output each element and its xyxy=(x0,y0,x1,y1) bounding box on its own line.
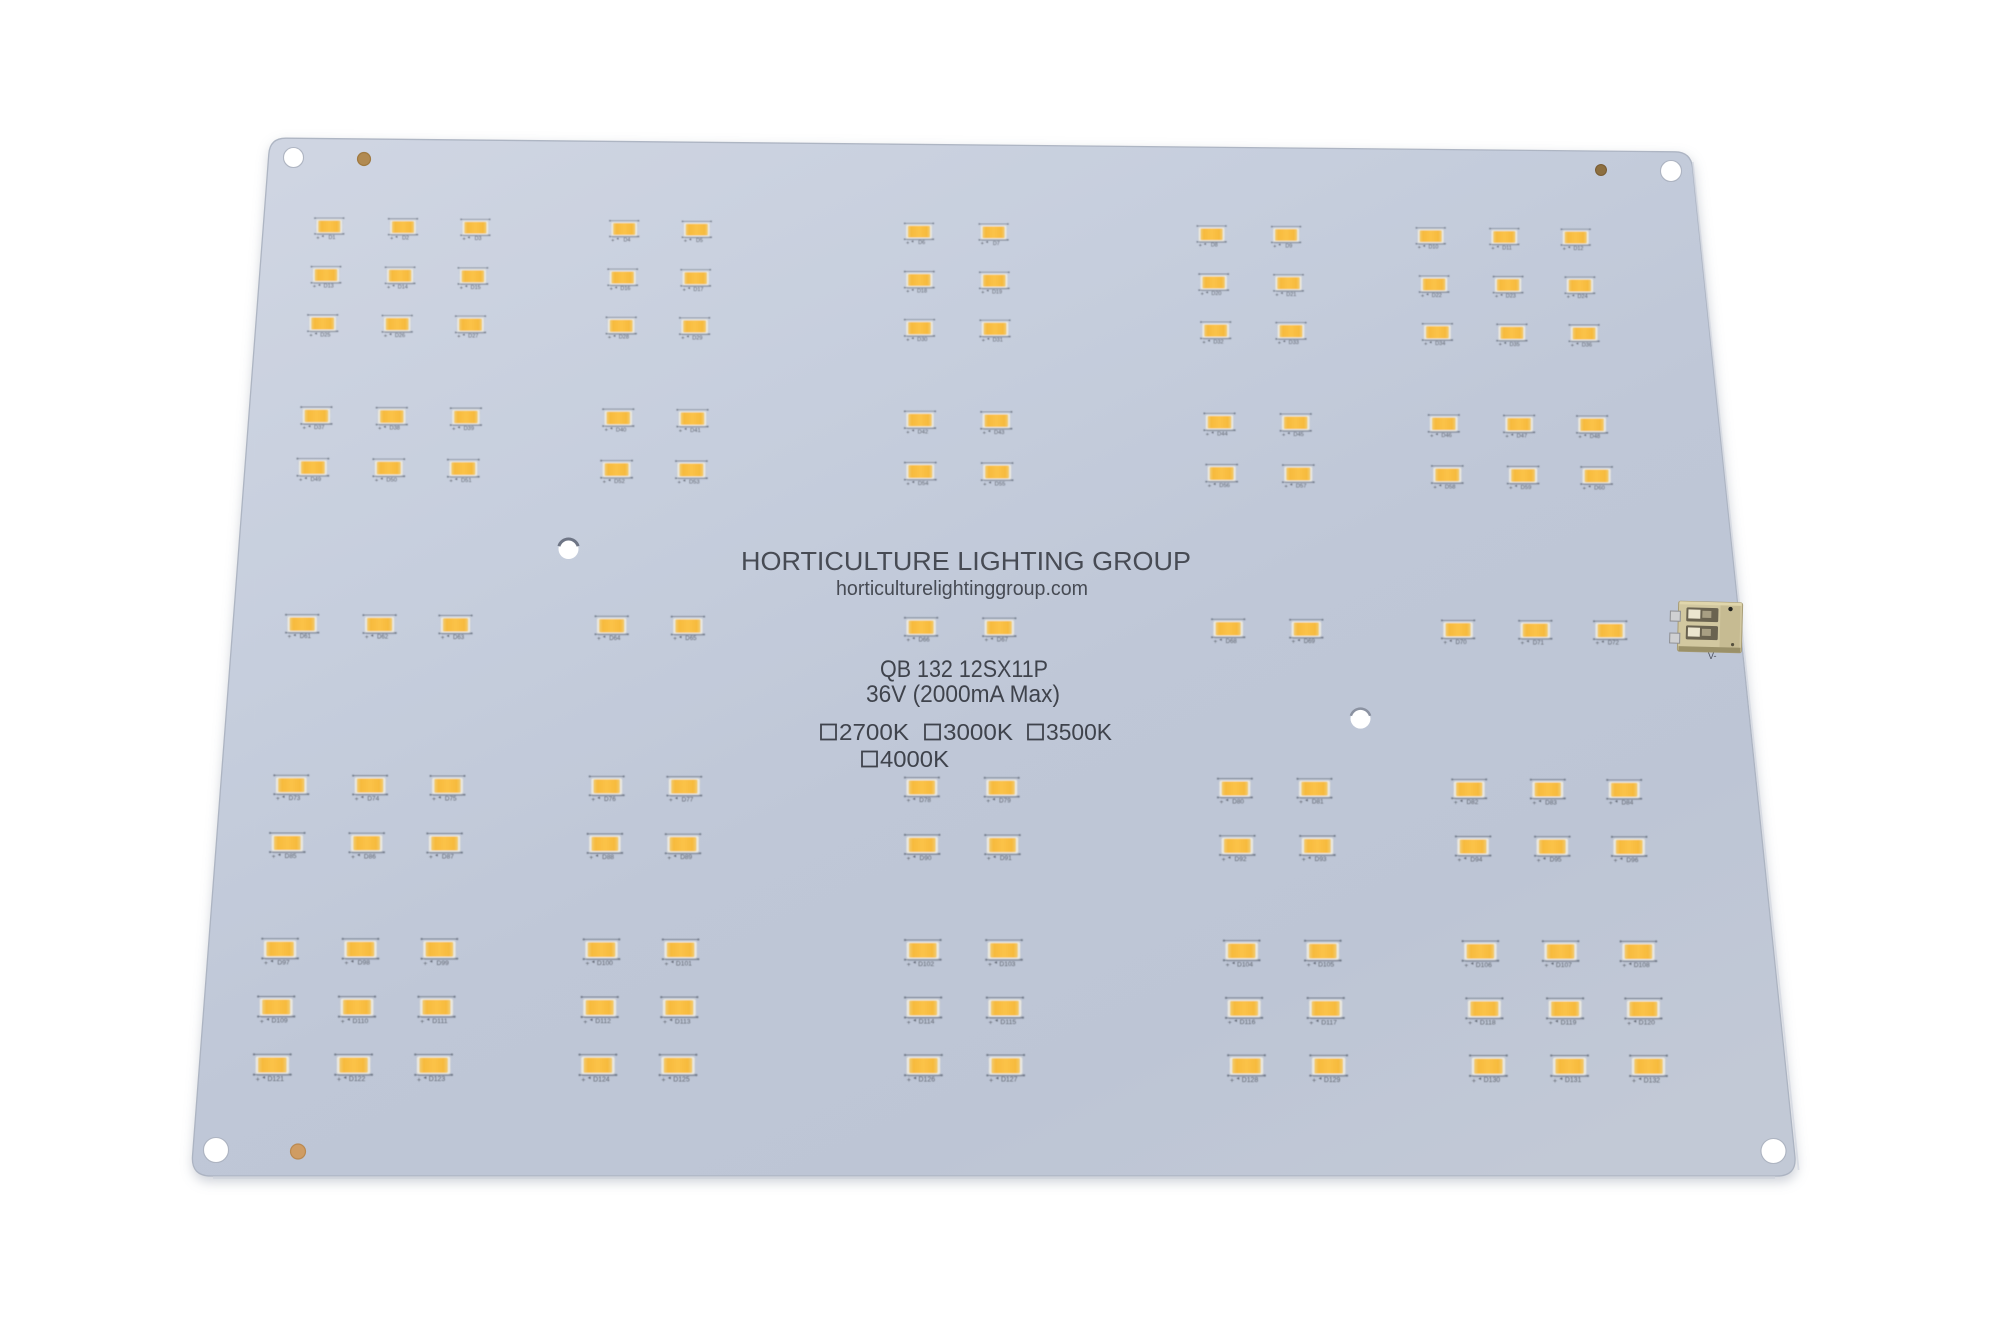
svg-text:D103: D103 xyxy=(999,961,1015,968)
svg-text:D28: D28 xyxy=(619,335,629,341)
svg-text:D25: D25 xyxy=(320,332,330,338)
svg-text:D128: D128 xyxy=(1242,1077,1259,1084)
svg-text:D13: D13 xyxy=(324,284,334,290)
svg-text:D38: D38 xyxy=(389,426,399,432)
svg-text:D91: D91 xyxy=(1000,855,1012,862)
svg-text:D119: D119 xyxy=(1561,1020,1577,1027)
svg-text:D53: D53 xyxy=(689,480,700,486)
svg-text:D50: D50 xyxy=(386,478,397,484)
svg-text:D130: D130 xyxy=(1484,1077,1501,1084)
svg-text:D131: D131 xyxy=(1565,1077,1582,1084)
svg-text:D73: D73 xyxy=(289,795,301,802)
svg-text:D61: D61 xyxy=(300,633,312,640)
svg-text:3000K: 3000K xyxy=(943,719,1014,745)
svg-text:D35: D35 xyxy=(1509,342,1519,348)
svg-text:D9: D9 xyxy=(1285,243,1292,249)
svg-text:D65: D65 xyxy=(685,635,697,642)
svg-text:D64: D64 xyxy=(609,635,621,642)
svg-text:D39: D39 xyxy=(464,426,474,432)
svg-text:D124: D124 xyxy=(593,1076,610,1083)
svg-text:2700K: 2700K xyxy=(839,719,910,745)
svg-text:D123: D123 xyxy=(429,1076,446,1083)
svg-text:D106: D106 xyxy=(1476,962,1492,969)
svg-text:D101: D101 xyxy=(676,960,692,967)
svg-text:D36: D36 xyxy=(1582,342,1592,348)
svg-text:4000K: 4000K xyxy=(880,746,950,772)
svg-text:D54: D54 xyxy=(918,481,929,487)
svg-text:D85: D85 xyxy=(285,853,297,860)
svg-text:D70: D70 xyxy=(1456,639,1468,646)
svg-text:D5: D5 xyxy=(696,238,703,244)
svg-text:D111: D111 xyxy=(432,1018,447,1025)
svg-text:D46: D46 xyxy=(1441,433,1451,439)
svg-text:D47: D47 xyxy=(1517,434,1527,440)
svg-text:D26: D26 xyxy=(395,333,405,339)
svg-text:D104: D104 xyxy=(1237,961,1253,968)
svg-text:D115: D115 xyxy=(1000,1019,1016,1026)
svg-text:D59: D59 xyxy=(1521,485,1532,491)
svg-text:D116: D116 xyxy=(1240,1019,1256,1026)
svg-text:D132: D132 xyxy=(1644,1077,1661,1084)
svg-text:D81: D81 xyxy=(1312,799,1324,806)
svg-text:D79: D79 xyxy=(999,798,1011,805)
svg-text:D94: D94 xyxy=(1470,857,1482,864)
svg-text:D112: D112 xyxy=(595,1018,611,1025)
svg-text:D87: D87 xyxy=(442,854,454,861)
svg-text:36V (2000mA Max): 36V (2000mA Max) xyxy=(866,681,1060,708)
svg-text:D49: D49 xyxy=(310,477,321,483)
svg-text:D57: D57 xyxy=(1296,483,1307,489)
svg-text:D114: D114 xyxy=(919,1019,935,1026)
svg-text:D78: D78 xyxy=(919,797,931,804)
svg-text:D63: D63 xyxy=(453,634,465,641)
svg-text:D98: D98 xyxy=(358,960,371,967)
svg-text:D75: D75 xyxy=(445,796,457,803)
svg-text:D110: D110 xyxy=(353,1018,369,1025)
svg-text:D14: D14 xyxy=(398,284,408,290)
svg-text:D127: D127 xyxy=(1001,1077,1018,1084)
svg-text:D80: D80 xyxy=(1232,798,1244,805)
svg-text:D44: D44 xyxy=(1217,432,1227,438)
svg-text:D10: D10 xyxy=(1428,245,1438,251)
svg-text:D15: D15 xyxy=(471,285,481,291)
svg-text:D82: D82 xyxy=(1467,799,1479,806)
svg-text:D109: D109 xyxy=(271,1018,287,1025)
svg-text:HORTICULTURE LIGHTING GROUP: HORTICULTURE LIGHTING GROUP xyxy=(741,546,1191,576)
svg-text:D60: D60 xyxy=(1594,485,1605,491)
svg-text:D68: D68 xyxy=(1226,638,1238,645)
svg-text:D16: D16 xyxy=(620,286,630,292)
svg-text:D71: D71 xyxy=(1533,639,1545,646)
svg-text:D77: D77 xyxy=(682,796,694,803)
svg-text:D83: D83 xyxy=(1545,799,1557,806)
svg-text:D34: D34 xyxy=(1435,341,1445,347)
svg-text:D74: D74 xyxy=(367,795,379,802)
svg-text:D92: D92 xyxy=(1235,856,1247,863)
svg-text:D3: D3 xyxy=(475,236,482,242)
svg-text:D67: D67 xyxy=(997,637,1009,644)
svg-text:D24: D24 xyxy=(1578,294,1588,300)
svg-text:D29: D29 xyxy=(692,335,702,341)
svg-text:D40: D40 xyxy=(616,427,626,433)
svg-text:D97: D97 xyxy=(277,960,290,967)
svg-text:D58: D58 xyxy=(1445,484,1456,490)
svg-text:D32: D32 xyxy=(1213,339,1223,345)
svg-text:D43: D43 xyxy=(994,430,1004,436)
svg-text:D86: D86 xyxy=(364,853,376,860)
svg-text:D121: D121 xyxy=(267,1076,284,1083)
svg-text:D108: D108 xyxy=(1634,962,1650,969)
svg-text:D122: D122 xyxy=(349,1076,366,1083)
svg-text:D18: D18 xyxy=(917,289,927,295)
svg-text:D19: D19 xyxy=(992,289,1002,295)
svg-text:D72: D72 xyxy=(1608,640,1620,647)
svg-text:D90: D90 xyxy=(920,855,932,862)
svg-text:D55: D55 xyxy=(995,482,1006,488)
svg-text:D51: D51 xyxy=(461,478,472,484)
svg-text:D62: D62 xyxy=(377,634,389,641)
svg-text:D102: D102 xyxy=(918,961,934,968)
svg-text:D96: D96 xyxy=(1626,857,1638,864)
svg-text:D30: D30 xyxy=(917,337,927,343)
svg-text:D69: D69 xyxy=(1304,638,1316,645)
svg-text:V-: V- xyxy=(1708,651,1717,661)
svg-text:D23: D23 xyxy=(1506,294,1516,300)
svg-text:D100: D100 xyxy=(597,960,613,967)
svg-text:D88: D88 xyxy=(602,854,614,861)
svg-text:D93: D93 xyxy=(1315,856,1327,863)
svg-text:D31: D31 xyxy=(993,338,1003,344)
svg-text:D95: D95 xyxy=(1550,857,1562,864)
svg-text:D76: D76 xyxy=(604,796,616,803)
svg-text:QB 132 12SX11P: QB 132 12SX11P xyxy=(880,656,1048,683)
svg-text:D107: D107 xyxy=(1556,962,1572,969)
svg-text:D37: D37 xyxy=(314,425,324,431)
svg-text:D4: D4 xyxy=(623,238,630,244)
svg-text:D17: D17 xyxy=(693,287,703,293)
svg-text:D6: D6 xyxy=(918,240,925,246)
svg-text:D56: D56 xyxy=(1219,483,1230,489)
svg-text:D45: D45 xyxy=(1293,432,1303,438)
svg-text:D8: D8 xyxy=(1211,243,1218,249)
svg-text:D33: D33 xyxy=(1289,340,1299,346)
svg-text:D129: D129 xyxy=(1324,1077,1341,1084)
svg-text:D20: D20 xyxy=(1211,291,1221,297)
svg-text:D105: D105 xyxy=(1318,962,1334,969)
svg-text:D113: D113 xyxy=(675,1018,691,1025)
svg-text:D48: D48 xyxy=(1590,434,1600,440)
svg-text:D12: D12 xyxy=(1573,246,1583,252)
svg-text:D41: D41 xyxy=(690,428,700,434)
svg-text:D66: D66 xyxy=(919,636,931,643)
svg-text:D126: D126 xyxy=(919,1077,936,1084)
svg-text:D99: D99 xyxy=(437,960,450,967)
svg-text:D11: D11 xyxy=(1502,245,1512,251)
svg-text:D117: D117 xyxy=(1321,1019,1337,1026)
svg-text:D120: D120 xyxy=(1639,1020,1655,1027)
svg-text:3500K: 3500K xyxy=(1046,719,1113,745)
svg-text:D2: D2 xyxy=(402,236,409,242)
svg-text:D22: D22 xyxy=(1432,293,1442,299)
svg-text:D1: D1 xyxy=(328,235,335,241)
svg-text:D42: D42 xyxy=(918,429,928,435)
svg-text:D7: D7 xyxy=(993,241,1000,247)
svg-text:D27: D27 xyxy=(468,334,478,340)
svg-text:D52: D52 xyxy=(614,479,625,485)
svg-text:D118: D118 xyxy=(1480,1020,1496,1027)
svg-text:D125: D125 xyxy=(673,1076,690,1083)
svg-text:horticulturelightinggroup.com: horticulturelightinggroup.com xyxy=(836,578,1088,600)
svg-text:D89: D89 xyxy=(680,854,692,861)
svg-text:D84: D84 xyxy=(1622,800,1634,807)
svg-text:D21: D21 xyxy=(1286,292,1296,298)
